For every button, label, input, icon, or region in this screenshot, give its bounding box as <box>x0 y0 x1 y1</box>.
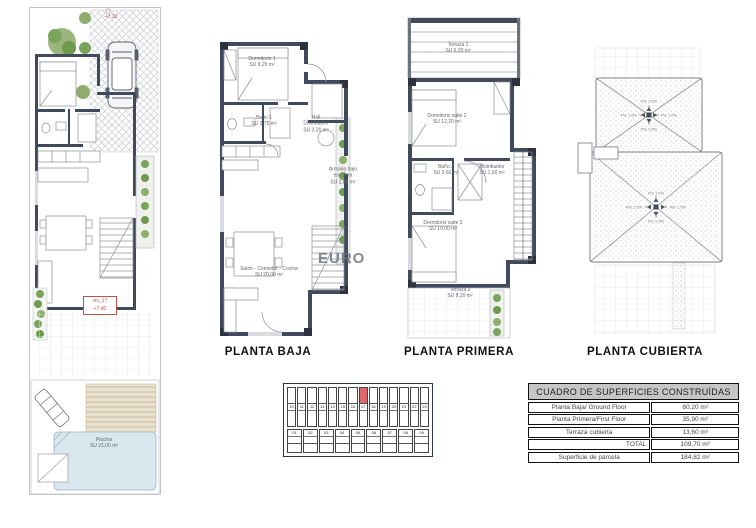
plot-cell-22: 22 <box>410 387 419 427</box>
slope-label: Pte 1,5% <box>626 205 642 210</box>
plot-cell-14: 14 <box>328 387 337 427</box>
plot-number: 03 <box>320 430 333 437</box>
table-row-label: Terraza cubierta <box>528 427 650 438</box>
site-plan <box>28 6 162 498</box>
pool-label: Piscina SU 21,00 m² <box>90 437 118 450</box>
key-plan-top-row: 1011121314151617181920212223 <box>287 387 429 427</box>
plot-cell-10: 10 <box>287 387 296 427</box>
room-label-armario: Armario bajo escalera SU 1,85 m² <box>328 167 358 186</box>
title-planta-cubierta: PLANTA CUBIERTA <box>587 346 703 358</box>
plot-roof <box>288 388 295 404</box>
plot-number: 15 <box>339 404 346 411</box>
plot-number: 10 <box>288 404 295 411</box>
plot-cell-11: 11 <box>297 387 306 427</box>
plot-cell-06: 06 <box>366 429 381 453</box>
plot-number: 09 <box>415 430 428 437</box>
table-row: Planta Primera/First Floor 35,90 m² <box>528 414 739 425</box>
plot-sub <box>370 411 377 426</box>
plot-cell-16: 16 <box>348 387 357 427</box>
plot-roof <box>320 443 333 452</box>
slope-label: Pte 1,5% <box>648 191 664 196</box>
slope-label: Pte 1,5% <box>621 113 637 118</box>
slope-label: Pte 1,5% <box>670 205 686 210</box>
window <box>220 196 224 232</box>
plot-roof <box>421 388 428 404</box>
plot-cell-18: 18 <box>369 387 378 427</box>
roof-lower <box>590 152 722 262</box>
room-label-suite3: Dormitorio suite 3 SU 10,00 m² <box>423 220 462 233</box>
plot-number: 18 <box>370 404 377 411</box>
plot-sub <box>411 411 418 426</box>
plot-sub <box>288 411 295 426</box>
plot-sub <box>329 411 336 426</box>
plot-sub <box>421 411 428 426</box>
plot-roof <box>390 388 397 404</box>
plot-sub <box>349 411 356 426</box>
room-label-distribuidor: Distribuidor SU 1,60 m² <box>479 164 504 177</box>
slope-label: Pte 1,5% <box>661 113 677 118</box>
plot-sub <box>298 411 305 426</box>
plot-number: 05 <box>352 430 365 437</box>
window <box>35 171 38 205</box>
plot-number: 19 <box>380 404 387 411</box>
table-row: Superficie de parcela 184,82 m² <box>528 452 739 463</box>
plot-cell-17: 17 <box>359 387 368 427</box>
surfaces-table-title: CUADRO DE SUPERFICIES CONSTRUÍDAS <box>528 383 739 400</box>
plot-cell-01: 01 <box>287 429 302 453</box>
title-planta-baja: PLANTA BAJA <box>225 346 311 358</box>
plot-number: 22 <box>411 404 418 411</box>
plot-sub <box>339 411 346 426</box>
plot-number: 02 <box>304 430 317 437</box>
site-level-label: +7.10 <box>105 14 118 20</box>
plot-roof <box>367 443 380 452</box>
surfaces-table: CUADRO DE SUPERFICIES CONSTRUÍDAS Planta… <box>528 383 739 463</box>
plot-roof <box>370 388 377 404</box>
plot-id-label: viv_17 +7.40 <box>83 296 117 315</box>
room-label-terraza2: Terraza 2 SU 8,20 m² <box>447 287 472 300</box>
table-row-value: 109,70 m² <box>651 439 739 450</box>
plot-cell-12: 12 <box>307 387 316 427</box>
plot-cell-23: 23 <box>420 387 429 427</box>
terrace-grid <box>595 265 715 333</box>
plot-number: 20 <box>390 404 397 411</box>
plot-cell-15: 15 <box>338 387 347 427</box>
plot-roof <box>411 388 418 404</box>
pergola-grid <box>595 48 700 78</box>
plot-cell-13: 13 <box>318 387 327 427</box>
table-row-value: 184,82 m² <box>651 452 739 463</box>
room-label-suite2: Dormitorio suite 2 SU 12,20 m² <box>427 113 466 126</box>
table-row-value: 60,20 m² <box>651 402 739 413</box>
patio-paving <box>38 312 152 378</box>
chimney <box>578 143 592 173</box>
room-label-dormitorio1: Dormitorio 1 SU 9,20 m² <box>248 56 275 69</box>
plot-roof <box>304 443 317 452</box>
room-label-salon: Salón - Comedor - Cocina SU 20,00 m² <box>240 266 298 279</box>
window <box>35 231 38 265</box>
plot-cell-20: 20 <box>389 387 398 427</box>
plot-roof <box>349 388 356 404</box>
window <box>408 238 412 270</box>
plot-sub <box>390 411 397 426</box>
plot-roof <box>400 388 407 404</box>
chimney <box>594 147 618 159</box>
watermark: EURO <box>318 250 365 267</box>
plot-sub <box>360 411 367 426</box>
table-row: Terraza cubierta 13,60 m² <box>528 427 739 438</box>
key-plan-bottom-row: 010203040506070809 <box>287 429 429 453</box>
floorplan-sheet: +7.10 viv_17 +7.40 Piscina SU 21,00 m² <box>0 0 756 528</box>
room-label-bano1: Baño 1 SU 3,75 m² <box>251 115 276 128</box>
plot-roof <box>380 388 387 404</box>
table-row-value: 35,90 m² <box>651 414 739 425</box>
plot-number: 01 <box>288 430 301 437</box>
plot-cell-04: 04 <box>335 429 350 453</box>
table-row-label: Planta Primera/First Floor <box>528 414 650 425</box>
plot-number: 17 <box>360 404 367 411</box>
plot-roof <box>319 388 326 404</box>
room-label-terraza1: Terraza 1 SU 6,20 m² <box>445 42 470 55</box>
plot-roof <box>288 443 301 452</box>
table-row-label: TOTAL <box>528 439 650 450</box>
plot-cell-21: 21 <box>399 387 408 427</box>
plot-roof <box>352 443 365 452</box>
furniture <box>222 48 344 332</box>
plot-number: 06 <box>367 430 380 437</box>
plot-sub <box>319 411 326 426</box>
plot-roof <box>336 443 349 452</box>
plot-number: 12 <box>308 404 315 411</box>
plot-number: 13 <box>319 404 326 411</box>
plot-roof <box>298 388 305 404</box>
table-row-label: Superficie de parcela <box>528 452 650 463</box>
plot-roof <box>383 443 396 452</box>
table-row-label: Planta Baja/ Ground Floor <box>528 402 650 413</box>
room-label-bano2: Baño 2 SU 3,60 m² <box>433 164 458 177</box>
plot-cell-05: 05 <box>351 429 366 453</box>
plot-number: 14 <box>329 404 336 411</box>
slope-label: Pte 1,5% <box>641 127 657 132</box>
plot-number: 07 <box>383 430 396 437</box>
plot-number: 21 <box>400 404 407 411</box>
room-label-hall: Hall Distribuidor SU 3,20 m² <box>302 115 330 134</box>
plot-roof <box>308 388 315 404</box>
plot-roof <box>360 388 367 404</box>
plot-number: 23 <box>421 404 428 411</box>
gravel-strip <box>673 263 685 329</box>
plot-number: 08 <box>399 430 412 437</box>
planta-baja-plan <box>212 36 352 342</box>
plot-number: 04 <box>336 430 349 437</box>
plot-number: 11 <box>298 404 305 411</box>
plot-cell-07: 07 <box>382 429 397 453</box>
plot-cell-03: 03 <box>319 429 334 453</box>
table-row: Planta Baja/ Ground Floor 60,20 m² <box>528 402 739 413</box>
plot-roof <box>399 443 412 452</box>
plot-sub <box>400 411 407 426</box>
plot-sub <box>380 411 387 426</box>
planta-baja-drawing <box>212 36 352 342</box>
table-row-value: 13,60 m² <box>651 427 739 438</box>
deck-icon <box>86 384 156 432</box>
plot-cell-09: 09 <box>414 429 429 453</box>
plot-cell-08: 08 <box>398 429 413 453</box>
site-plan-drawing <box>28 6 162 498</box>
planter-icon <box>136 156 154 248</box>
title-planta-primera: PLANTA PRIMERA <box>404 346 514 358</box>
plot-sub <box>308 411 315 426</box>
plot-roof <box>329 388 336 404</box>
plot-cell-19: 19 <box>379 387 388 427</box>
plot-cell-02: 02 <box>303 429 318 453</box>
key-plan: 1011121314151617181920212223 01020304050… <box>283 383 433 457</box>
roof-upper <box>596 78 702 152</box>
window <box>248 332 282 336</box>
window <box>408 112 412 144</box>
table-row-total: TOTAL 109,70 m² <box>528 439 739 450</box>
plot-roof <box>339 388 346 404</box>
slope-label: Pte 1,5% <box>641 99 657 104</box>
plot-number: 16 <box>349 404 356 411</box>
plot-roof <box>415 443 428 452</box>
slope-label: Pte 1,5% <box>648 219 664 224</box>
